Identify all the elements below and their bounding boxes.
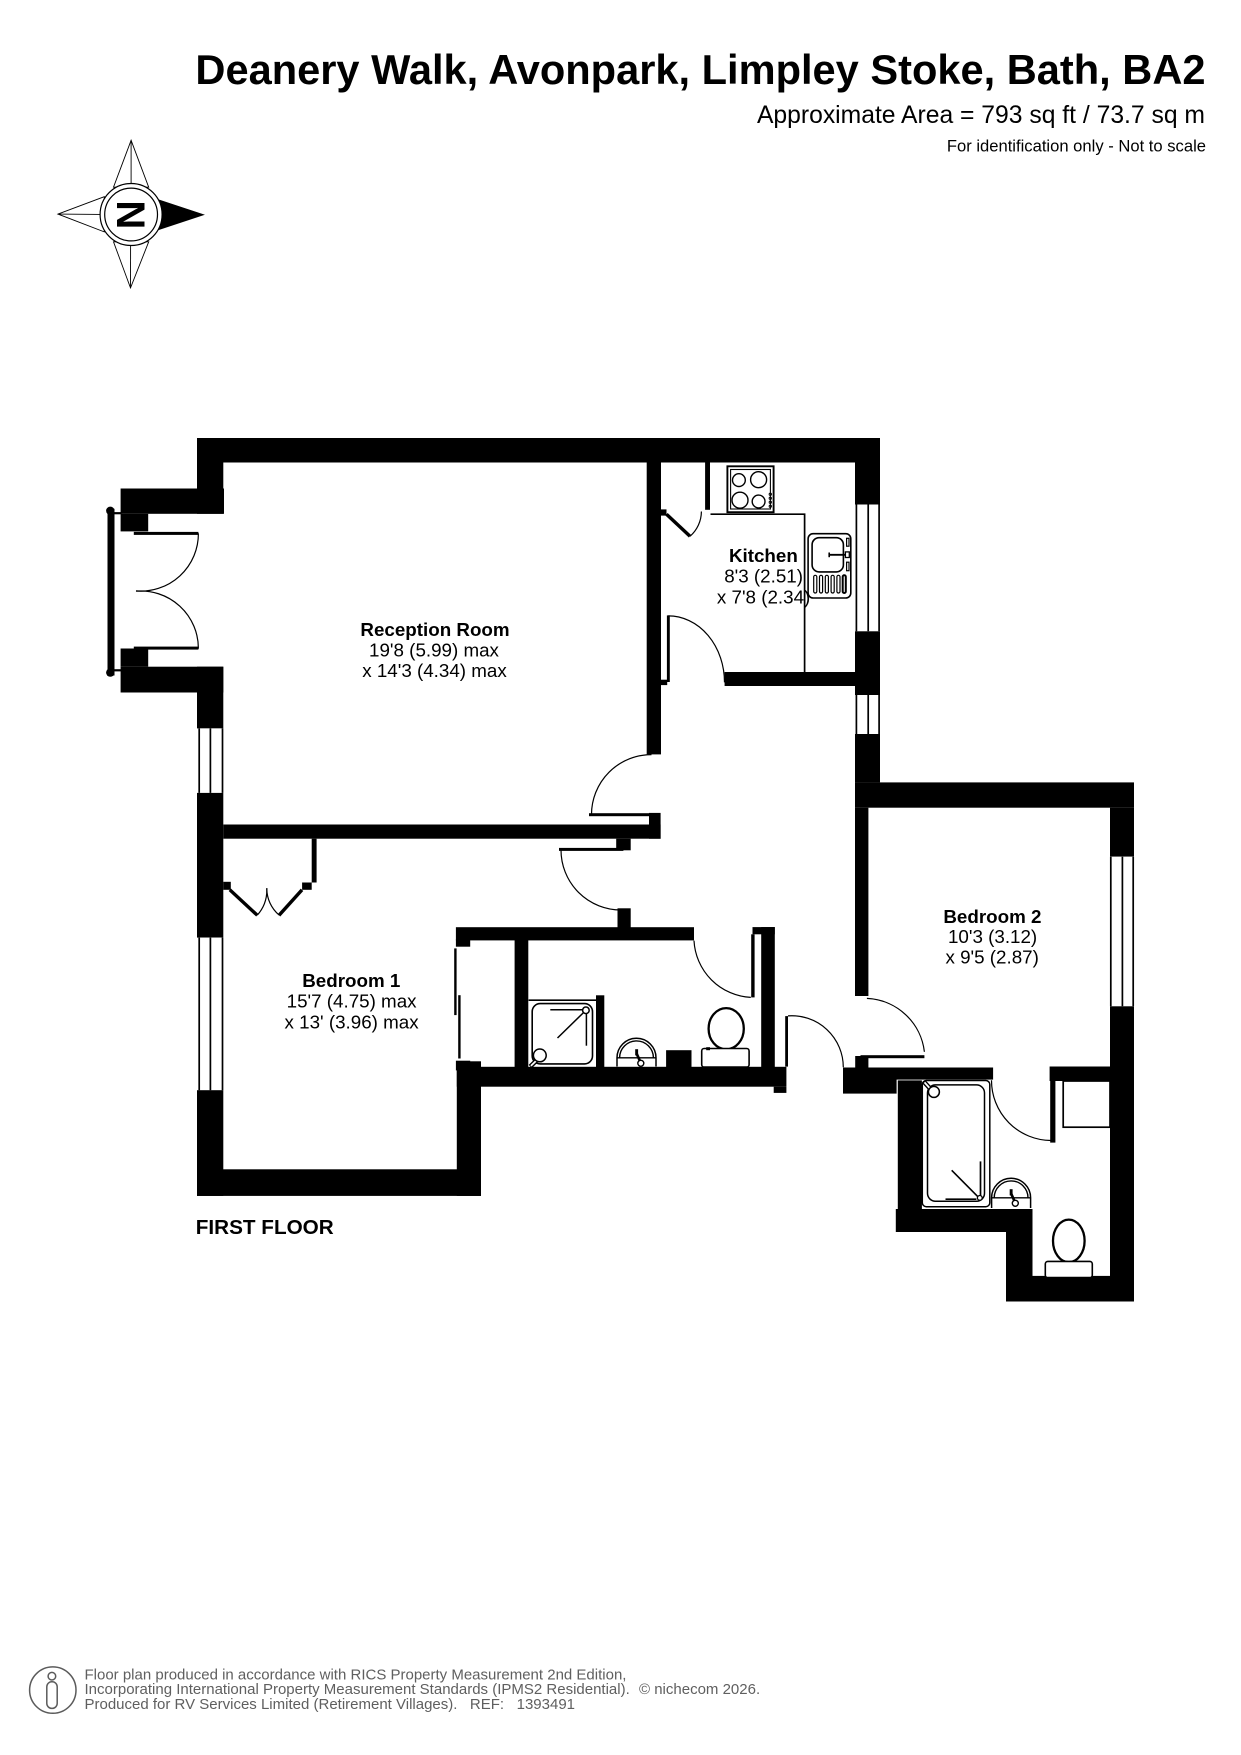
svg-text:Reception Room: Reception Room	[360, 619, 509, 640]
svg-text:x 7'8 (2.34): x 7'8 (2.34)	[717, 586, 810, 607]
svg-text:Produced for RV Services Limit: Produced for RV Services Limited (Retire…	[85, 1696, 576, 1713]
svg-text:Kitchen: Kitchen	[729, 545, 798, 566]
svg-text:x 14'3 (4.34) max: x 14'3 (4.34) max	[362, 660, 507, 681]
svg-text:Bedroom 1: Bedroom 1	[302, 970, 400, 991]
svg-text:FIRST FLOOR: FIRST FLOOR	[196, 1216, 334, 1239]
svg-text:N: N	[108, 200, 152, 229]
svg-text:Bedroom 2: Bedroom 2	[943, 906, 1041, 927]
svg-text:15'7 (4.75) max: 15'7 (4.75) max	[287, 991, 418, 1012]
svg-text:x 9'5 (2.87): x 9'5 (2.87)	[946, 946, 1039, 967]
svg-text:x 13' (3.96) max: x 13' (3.96) max	[285, 1011, 420, 1032]
svg-text:8'3 (2.51): 8'3 (2.51)	[724, 566, 803, 587]
svg-text:19'8 (5.99) max: 19'8 (5.99) max	[369, 640, 500, 661]
svg-text:Approximate Area = 793 sq ft /: Approximate Area = 793 sq ft / 73.7 sq m	[757, 102, 1205, 129]
svg-text:Deanery Walk, Avonpark, Limple: Deanery Walk, Avonpark, Limpley Stoke, B…	[195, 46, 1205, 93]
svg-text:10'3 (3.12): 10'3 (3.12)	[948, 926, 1037, 947]
svg-text:© nichecom 2026.: © nichecom 2026.	[639, 1681, 760, 1698]
svg-text:For identification only - Not: For identification only - Not to scale	[947, 137, 1206, 156]
